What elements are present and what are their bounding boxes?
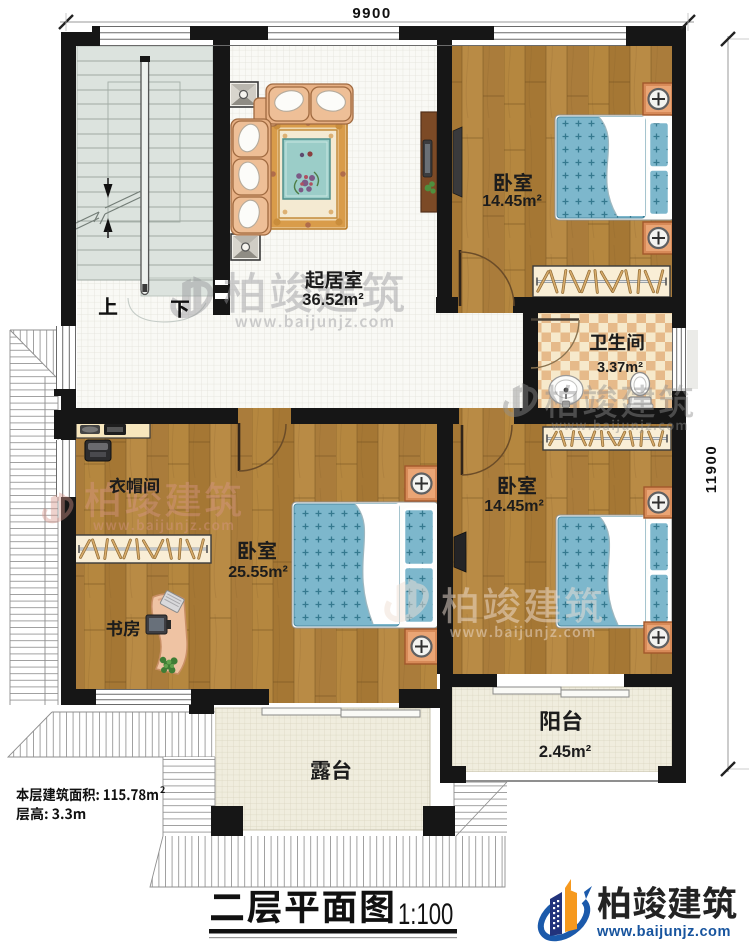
svg-text:25.55m²: 25.55m² <box>228 564 288 581</box>
svg-text:9900: 9900 <box>352 5 391 22</box>
svg-text:36.52m²: 36.52m² <box>302 291 364 309</box>
svg-text:14.45m²: 14.45m² <box>482 193 542 210</box>
svg-text:2.45m²: 2.45m² <box>539 743 592 761</box>
svg-text:3.37m²: 3.37m² <box>597 360 643 376</box>
svg-text:14.45m²: 14.45m² <box>484 498 544 515</box>
svg-text:www.baijunjz.com: www.baijunjz.com <box>596 924 731 940</box>
svg-text:1:100: 1:100 <box>398 897 453 931</box>
svg-text:11900: 11900 <box>703 445 720 493</box>
